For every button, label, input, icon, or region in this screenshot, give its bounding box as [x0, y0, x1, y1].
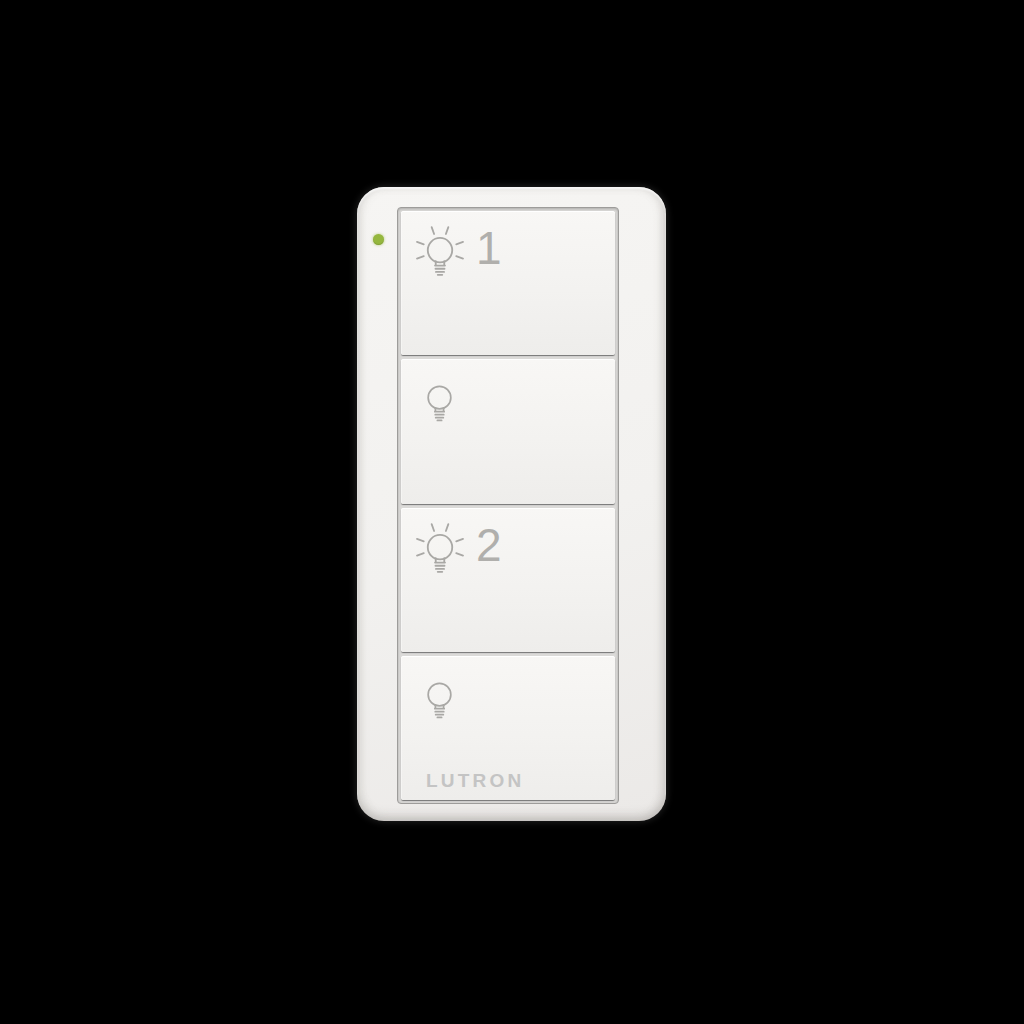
- button-light-1-off[interactable]: [401, 359, 615, 503]
- button-label-group: 1: [411, 224, 502, 280]
- product-image-background: 1: [0, 0, 1024, 1024]
- button-number-label: 2: [476, 522, 502, 568]
- button-light-2-on[interactable]: 2: [401, 508, 615, 652]
- button-light-2-off[interactable]: LUTRON: [401, 656, 615, 800]
- brand-logo: LUTRON: [426, 770, 524, 792]
- bulb-lit-icon: [411, 521, 469, 577]
- button-light-1-on[interactable]: 1: [401, 211, 615, 355]
- pico-remote-body: 1: [357, 187, 666, 821]
- status-led: [373, 234, 384, 245]
- button-label-group: 2: [411, 521, 502, 577]
- button-number-label: 1: [476, 225, 502, 271]
- button-panel: 1: [397, 207, 619, 804]
- bulb-lit-icon: [411, 224, 469, 280]
